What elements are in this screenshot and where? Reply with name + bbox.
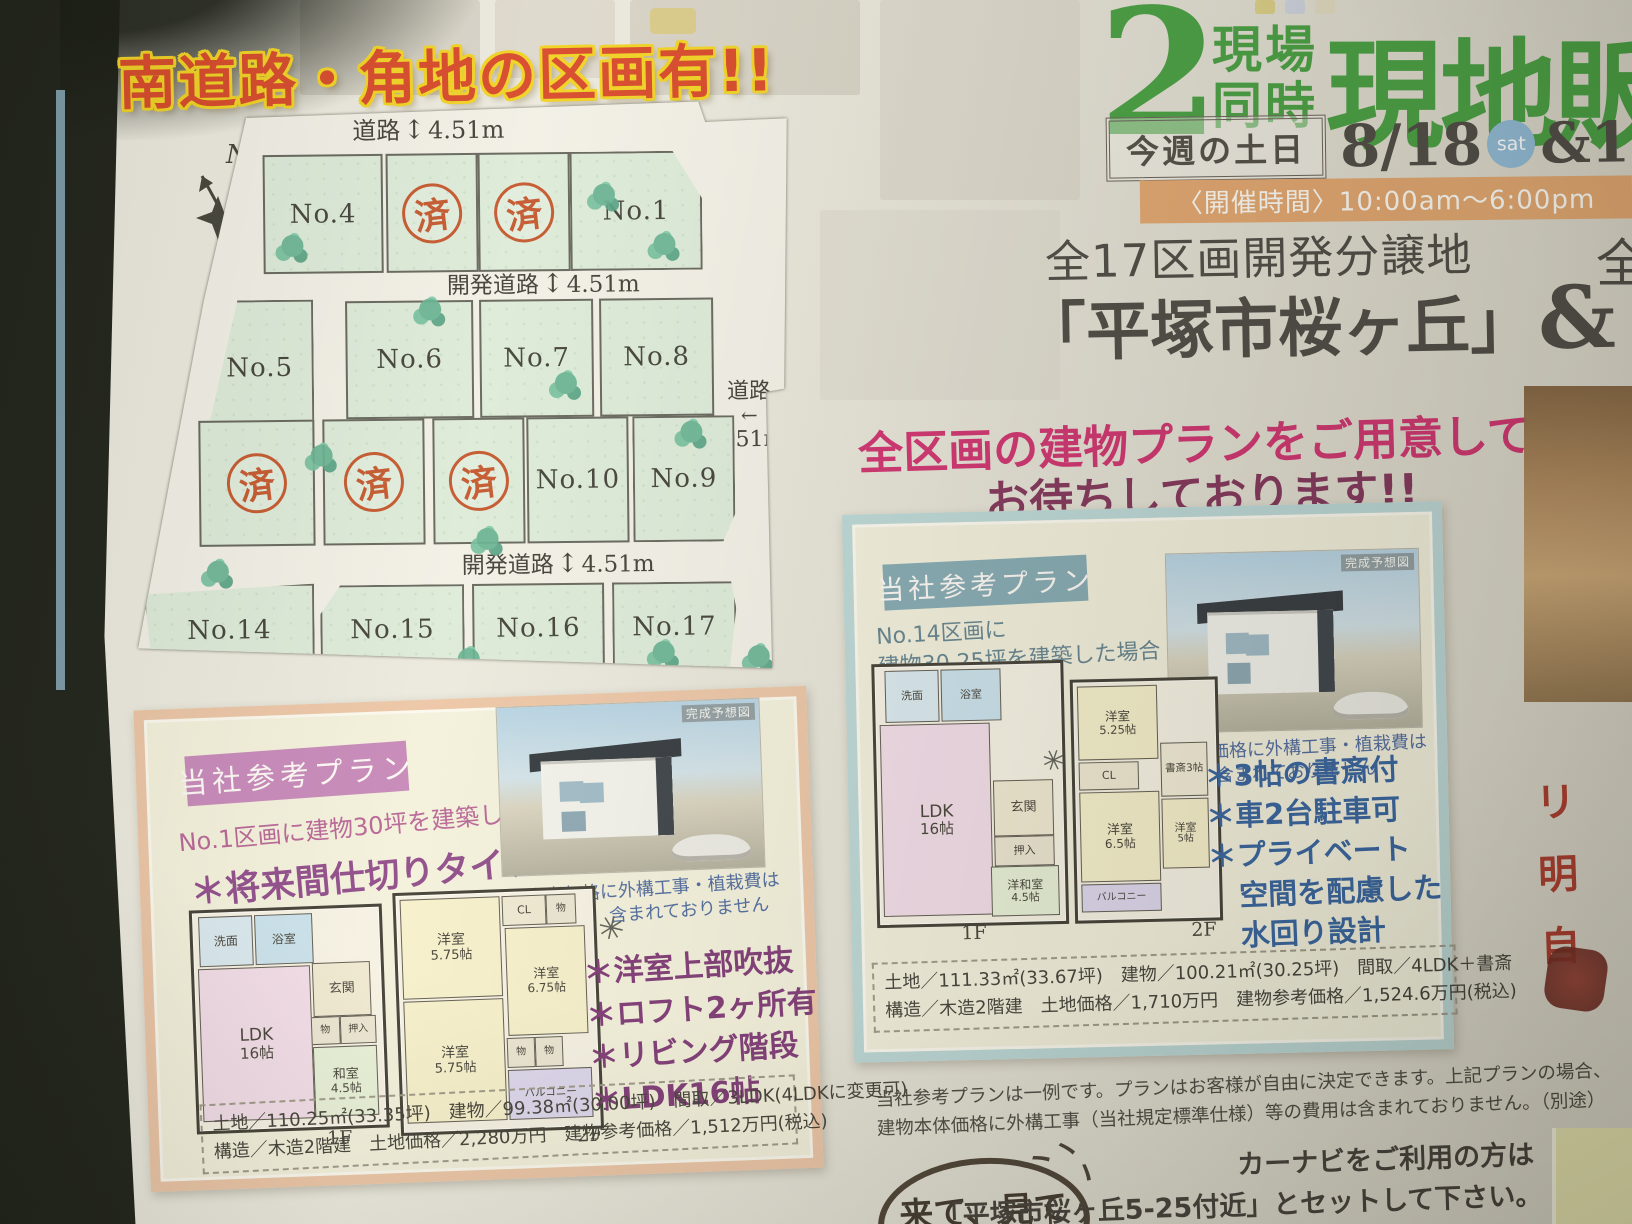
map-lot-no1: No.1 <box>569 151 702 271</box>
lot-label: No.15 <box>350 614 435 645</box>
room-closet: CL <box>501 895 546 927</box>
tree-icon <box>311 444 333 466</box>
edge-photo-fragment <box>1524 386 1632 702</box>
map-lot-sold: 済 <box>477 152 570 272</box>
floor-plan-1f: 洗面 浴室 LDK16帖 玄関 押入 洋和室4.5帖 <box>871 660 1069 928</box>
room-size: 5.75帖 <box>435 1061 477 1077</box>
floor-label-1f: 1F <box>961 922 987 945</box>
room-washroom: 洗面 <box>884 670 939 723</box>
clipped-fragment: 「 <box>1594 288 1632 387</box>
road-label-mid2: 開発道路↕4.51m <box>462 544 655 580</box>
arrow-icon: ↕ <box>554 549 582 579</box>
arrow-icon: ↕ <box>539 269 567 299</box>
room-entrance: 玄関 <box>993 779 1054 836</box>
map-lot-sold: 済 <box>386 153 479 273</box>
lot-label: No.16 <box>496 613 581 644</box>
map-lot-no8: No.8 <box>599 297 714 416</box>
lot-label: No.14 <box>187 615 272 646</box>
tree-icon <box>748 645 770 667</box>
car <box>672 833 751 861</box>
room-label: 洗面 <box>901 690 923 702</box>
sold-stamp-icon: 済 <box>399 180 465 246</box>
event-time-bar: 〈開催時間〉10:00am〜6:00pm <box>1140 175 1632 223</box>
room-size: 16帖 <box>240 1044 275 1061</box>
room-closet: 押入 <box>340 1015 377 1044</box>
room-label: 浴室 <box>272 932 296 946</box>
room-ldk: LDK16帖 <box>880 723 994 917</box>
background-photo-fragment <box>880 0 1080 200</box>
event-date-row: 今週の土日 8/18 sat &19 <box>1106 108 1631 183</box>
edge-photo-fragment <box>1552 1128 1632 1224</box>
room-label: 洗面 <box>214 934 238 948</box>
reference-plan-card-right: 当社参考プラン No.14区画に 建物30.25坪を建築した場合 完成予想図 参… <box>842 501 1454 1062</box>
room-bedroom: 洋室5.25帖 <box>1077 685 1159 761</box>
room-storage: 物 <box>545 893 576 924</box>
tree-icon <box>281 235 303 257</box>
room-tatami: 洋和室4.5帖 <box>991 865 1060 917</box>
room-label: バルコニー <box>1097 892 1147 904</box>
room-label: 洋室 <box>1105 709 1130 723</box>
room-storage: 物 <box>535 1036 564 1067</box>
room-size: 4.5帖 <box>331 1081 363 1095</box>
edge-char: 明 <box>1537 841 1579 900</box>
map-lot-sold: 済 <box>198 420 315 547</box>
room-label: LDK <box>920 802 954 821</box>
car <box>1333 691 1409 719</box>
room-label: 物 <box>556 903 566 914</box>
tree-icon <box>680 421 702 443</box>
room-bedroom: 洋室5.75帖 <box>400 896 504 1000</box>
tree-icon <box>653 641 675 663</box>
room-size: 5.75帖 <box>430 948 472 964</box>
house-windows <box>560 781 584 802</box>
site-name: 「平塚市桜ヶ丘」 <box>1021 273 1535 374</box>
room-closet: CL <box>1079 761 1140 790</box>
sold-stamp-icon: 済 <box>224 450 290 516</box>
map-lot-no6: No.6 <box>345 300 474 419</box>
room-bedroom: 洋室5帖 <box>1161 798 1210 869</box>
room-size: 16帖 <box>920 820 954 837</box>
room-label: 書斎3帖 <box>1165 763 1203 775</box>
road-width: 4.51m <box>581 551 654 578</box>
lot-label: No.9 <box>650 463 717 494</box>
lot-label: No.10 <box>536 464 621 495</box>
road-name: 開発道路 <box>447 272 539 299</box>
sold-stamp-icon: 済 <box>446 448 512 514</box>
edge-text-strip: リ 明 自 <box>1534 769 1581 972</box>
room-label: 物 <box>320 1025 330 1036</box>
room-label: 物 <box>544 1046 554 1057</box>
flyer-edge-line <box>56 90 65 690</box>
lot-label: No.17 <box>632 611 717 642</box>
map-lot-sold: 済 <box>322 418 425 545</box>
room-label: 物 <box>516 1047 526 1058</box>
room-label: 玄関 <box>1010 801 1036 816</box>
plan-bullets: ＊3帖の書斎付 ＊車2台駐車可 ＊プライベート 空間を配慮した 水回り設計 <box>1204 747 1445 956</box>
site-title-row: 「平塚市桜ヶ丘」 & <box>1021 267 1616 378</box>
room-bedroom: 洋室6.75帖 <box>505 925 589 1036</box>
room-label: 玄関 <box>328 982 355 997</box>
event-date2: &19 <box>1540 109 1631 176</box>
room-entrance: 玄関 <box>312 961 372 1017</box>
room-bath: 浴室 <box>940 668 1001 721</box>
room-label: LDK <box>239 1026 273 1046</box>
sold-stamp-icon: 済 <box>341 449 407 515</box>
plan-badge: 当社参考プラン <box>882 555 1088 611</box>
edge-logo-fragment <box>1542 944 1610 1014</box>
plan-badge: 当社参考プラン <box>184 741 409 807</box>
weekend-badge: 今週の土日 <box>1106 115 1327 182</box>
room-closet: 押入 <box>994 835 1055 866</box>
reference-plan-card-left: 当社参考プラン No.1区画に建物30坪を建築した場合 ＊将来間仕切りタイプの洋… <box>133 686 823 1192</box>
floor-plan-2f: 洋室5.25帖 CL 洋室6.5帖 書斎3帖 洋室5帖 バルコニー <box>1070 676 1223 923</box>
photo-caption: 完成予想図 <box>682 703 756 723</box>
room-size: 5.25帖 <box>1099 723 1136 736</box>
clipped-fragment: 全 <box>1596 222 1632 297</box>
room-washroom: 洗面 <box>198 915 254 967</box>
flyer-photo: 南道路・角地の区画有!! N 道路↕4.51m 開発道路↕4.51m 道路 ← … <box>0 0 1632 1224</box>
house-rendering-photo: 完成予想図 <box>496 698 766 878</box>
room-balcony: バルコニー <box>1081 883 1162 913</box>
lot-label: No.5 <box>226 353 293 384</box>
road-label-top: 道路↕4.51m <box>352 110 504 147</box>
lot-label: No.7 <box>503 343 570 374</box>
road-name: 道路 <box>352 117 400 146</box>
road-name: 開発道路 <box>462 552 554 579</box>
room-label: CL <box>517 904 531 916</box>
sold-stamp-icon: 済 <box>491 179 557 245</box>
room-size: 4.5帖 <box>1011 891 1040 904</box>
map-lot-no7: No.7 <box>479 299 594 418</box>
arrow-icon: ↕ <box>400 115 428 145</box>
sat-circle-badge: sat <box>1487 120 1536 169</box>
room-label: 押入 <box>1013 845 1035 857</box>
lot-label: No.8 <box>623 342 690 373</box>
edge-char: リ <box>1534 769 1576 828</box>
room-label: 押入 <box>348 1024 368 1036</box>
house-windows <box>1226 633 1249 655</box>
room-storage: 物 <box>310 1016 341 1045</box>
tree-icon <box>555 372 577 394</box>
road-width: 4.51m <box>567 271 640 298</box>
room-bath: 浴室 <box>254 913 314 965</box>
room-size: 6.5帖 <box>1105 837 1136 851</box>
spec-box: 土地／111.33㎡(33.67坪) 建物／100.21㎡(30.25坪) 間取… <box>872 945 1458 1033</box>
event-date1: 8/18 <box>1340 110 1483 180</box>
lot-label: No.4 <box>290 199 357 230</box>
room-label: 洋室 <box>1107 823 1133 838</box>
room-bedroom: 洋室6.5帖 <box>1079 791 1161 883</box>
lot-label: No.6 <box>376 344 443 375</box>
room-label: CL <box>1102 770 1116 782</box>
room-size: 5帖 <box>1177 834 1194 845</box>
room-study: 書斎3帖 <box>1160 742 1208 797</box>
tree-icon <box>653 233 675 255</box>
room-label: 浴室 <box>960 689 982 701</box>
tree-icon <box>419 298 441 320</box>
map-lot-sold: 済 <box>432 417 525 544</box>
road-width: 4.51m <box>428 116 504 145</box>
map-lot-no17: No.17 <box>612 581 737 672</box>
tree-icon <box>207 561 229 583</box>
room-size: 6.75帖 <box>527 980 566 994</box>
map-lot-no10: No.10 <box>526 416 629 543</box>
tree-icon <box>593 183 615 205</box>
photo-caption: 完成予想図 <box>1341 553 1414 572</box>
room-storage: 物 <box>507 1037 536 1068</box>
map-lot-no5: No.5 <box>205 300 314 437</box>
map-lot-no4: No.4 <box>263 154 384 274</box>
tree-icon <box>476 528 498 550</box>
